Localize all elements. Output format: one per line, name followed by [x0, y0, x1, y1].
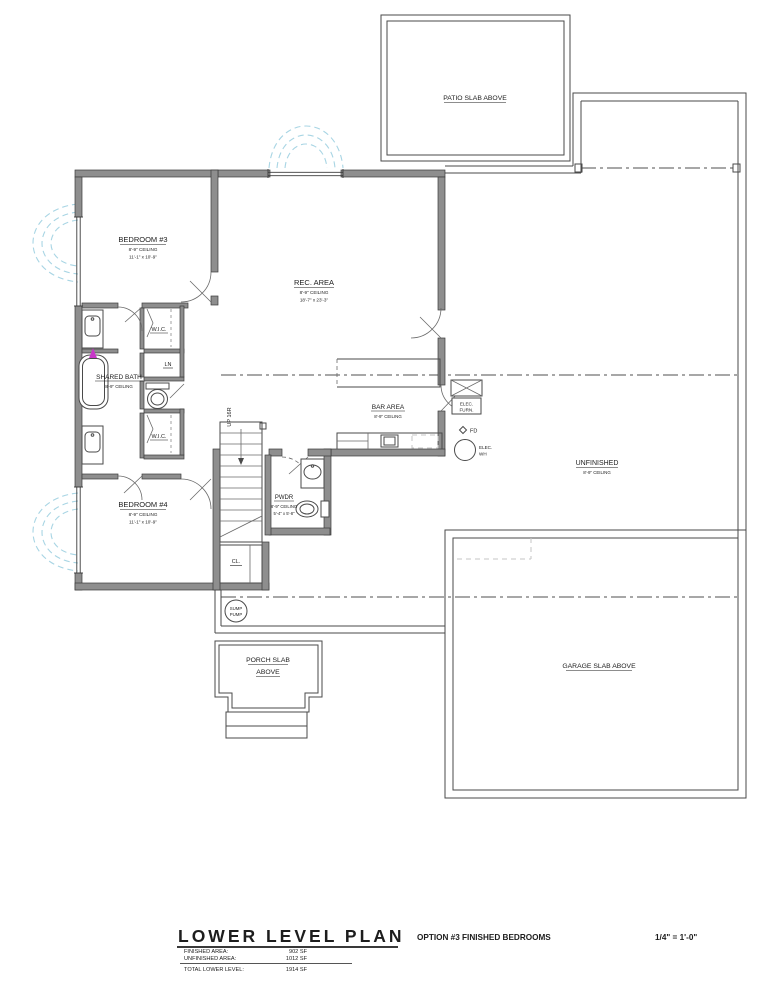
pwdr-ceiling: 8'-9" CEILING [271, 504, 297, 509]
sump-label-1: SUMP [230, 606, 243, 611]
toilet-shared-bath [146, 383, 169, 389]
sheet-title: LOWER LEVEL PLAN [178, 926, 405, 946]
bedroom3-dims: 11'-1" x 10'-9" [129, 255, 157, 260]
rec-area-dims: 18'-7" x 23'-3" [300, 298, 329, 303]
sump-pump-symbol [225, 600, 247, 622]
elec-furn-label-2: FURN. [459, 408, 473, 413]
pwdr-dims: 5'-4" x 5'-8" [273, 511, 295, 516]
patio-slab-outline [381, 15, 570, 161]
porch-slab-label-2: ABOVE [256, 669, 280, 676]
elec-furn-label-1: ELEC. [460, 402, 473, 407]
water-heater-symbol [455, 440, 476, 461]
bedroom4-dims: 11'-1" x 10'-9" [129, 520, 157, 525]
rec-area-name: REC. AREA [294, 278, 334, 287]
finished-area-label: FINISHED AREA: [184, 949, 229, 955]
wic-top-name: W.I.C. [152, 327, 167, 333]
unfinished-name: UNFINISHED [576, 460, 619, 467]
patio-slab-label: PATIO SLAB ABOVE [443, 95, 507, 102]
title-block: LOWER LEVEL PLAN OPTION #3 FINISHED BEDR… [177, 926, 697, 973]
floor-plan-sheet: UP 16R CL. [0, 0, 768, 984]
bedroom4-name: BEDROOM #4 [118, 500, 167, 509]
bar-area-name: BAR AREA [372, 404, 405, 411]
shared-bath-ceiling: 8'-9" CEILING [105, 384, 133, 389]
bedroom3-name: BEDROOM #3 [118, 235, 167, 244]
total-area-value: 1914 SF [286, 967, 308, 973]
elec-wh-label-2: WH [479, 452, 487, 457]
bedroom4-ceiling: 8'-9" CEILING [129, 512, 158, 517]
sump-label-2: PUMP [230, 612, 243, 617]
stairs-direction-label: UP 16R [227, 407, 233, 426]
stairs: UP 16R [220, 407, 266, 542]
unfinished-ceiling: 8'-9" CEILING [583, 470, 611, 475]
porch-slab-label-1: PORCH SLAB [246, 657, 290, 664]
lower-level-plan-drawing: UP 16R CL. [0, 0, 768, 984]
floor-drain-label: FD [470, 429, 477, 435]
toilet-pwdr [321, 501, 329, 517]
unfinished-area-label: UNFINISHED AREA: [184, 956, 237, 962]
total-area-label: TOTAL LOWER LEVEL: [184, 967, 244, 973]
garage-slab-label: GARAGE SLAB ABOVE [562, 663, 636, 670]
floor-drain-symbol [460, 427, 467, 434]
elec-wh-label-1: ELEC. [479, 445, 492, 450]
closet-label: CL. [232, 559, 241, 565]
bedroom3-ceiling: 8'-9" CEILING [129, 247, 158, 252]
bar-area-ceiling: 8'-9" CEILING [374, 414, 402, 419]
under-stair-closet: CL. [220, 545, 262, 583]
linen-name: LN [164, 362, 171, 368]
wic-bottom-name: W.I.C. [152, 434, 167, 440]
option-label: OPTION #3 FINISHED BEDROOMS [417, 933, 551, 942]
scale-label: 1/4" = 1'-0" [655, 933, 697, 942]
rec-area-ceiling: 8'-9" CEILING [300, 290, 329, 295]
porch-slab-outline [215, 641, 322, 738]
pwdr-name: PWDR [275, 495, 294, 501]
unfinished-area-value: 1012 SF [286, 956, 308, 962]
finished-area-value: 902 SF [289, 949, 308, 955]
shared-bath-name: SHARED BATH [96, 374, 142, 381]
